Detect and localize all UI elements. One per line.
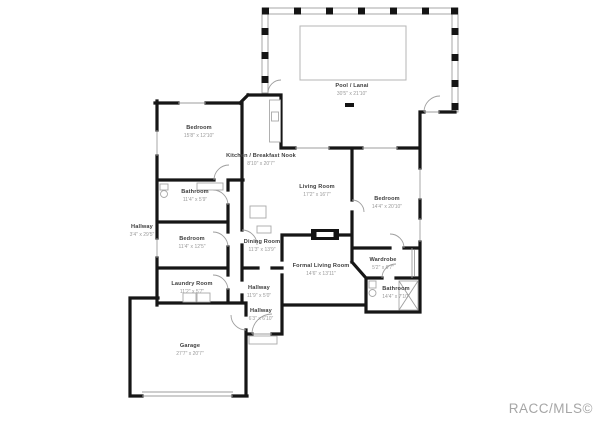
pool-step bbox=[345, 103, 354, 107]
room-name-wardrobe: Wardrobe bbox=[369, 257, 396, 263]
fireplace bbox=[311, 229, 339, 240]
room-dims-bathroom-2: 14'4" x 7'10" bbox=[382, 294, 410, 300]
room-name-dining-room: Dining Room bbox=[244, 239, 280, 245]
room-name-garage: Garage bbox=[180, 343, 200, 349]
bathroom2-toilet-bowl bbox=[369, 290, 376, 297]
room-name-hallway-1: Hallway bbox=[131, 224, 154, 230]
room-dims-living-room: 17'2" x 16'7" bbox=[303, 192, 331, 198]
room-dims-hallway-2: 11'9" x 5'0" bbox=[247, 293, 271, 299]
room-dims-hallway-3: 6'3" x 6'10" bbox=[249, 316, 274, 322]
watermark: RACC/MLS© bbox=[509, 401, 593, 416]
front-stoop bbox=[249, 336, 277, 344]
room-dims-bedroom-1: 15'8" x 12'10" bbox=[184, 133, 214, 139]
room-dims-kitchen: 8'10" x 20'7" bbox=[247, 161, 275, 167]
room-name-laundry: Laundry Room bbox=[171, 281, 212, 287]
room-dims-pool-lanai: 30'5" x 21'10" bbox=[337, 91, 367, 97]
room-name-living-room: Living Room bbox=[299, 184, 335, 190]
room-name-bedroom-2: Bedroom bbox=[374, 196, 400, 202]
room-name-bedroom-1: Bedroom bbox=[186, 125, 212, 131]
room-dims-bedroom-3: 11'4" x 12'5" bbox=[178, 244, 205, 250]
kitchen-island bbox=[250, 206, 266, 218]
floorplan-drawing: Pool / Lanai 30'5" x 21'10" Bedroom 15'8… bbox=[0, 0, 600, 424]
bathroom2-toilet-tank bbox=[369, 281, 376, 288]
wardrobe-closet-lines bbox=[412, 248, 415, 278]
room-name-pool-lanai: Pool / Lanai bbox=[335, 83, 368, 89]
room-dims-dining-room: 11'3" x 13'9" bbox=[248, 247, 275, 253]
kitchen-sink bbox=[272, 112, 279, 121]
room-name-bedroom-3: Bedroom bbox=[179, 236, 205, 242]
bathroom1-toilet-bowl bbox=[161, 191, 168, 198]
room-name-bathroom-1: Bathroom bbox=[181, 189, 209, 195]
room-name-kitchen: Kitchen / Breakfast Nook bbox=[226, 153, 297, 159]
bathroom1-toilet-tank bbox=[160, 184, 168, 190]
room-dims-wardrobe: 5'2" x 6'7" bbox=[372, 265, 394, 271]
room-name-bathroom-2: Bathroom bbox=[382, 286, 410, 292]
room-dims-garage: 27'7" x 20'7" bbox=[176, 351, 204, 357]
room-dims-bathroom-1: 11'4" x 5'9" bbox=[183, 197, 207, 203]
dining-hutch bbox=[257, 226, 271, 233]
pool bbox=[300, 26, 406, 80]
room-dims-formal-living: 14'6" x 13'11" bbox=[306, 271, 336, 277]
room-dims-bedroom-2: 14'4" x 20'10" bbox=[372, 204, 402, 210]
floorplan-page: Pool / Lanai 30'5" x 21'10" Bedroom 15'8… bbox=[0, 0, 600, 424]
room-dims-laundry: 11'2" x 5'7" bbox=[180, 289, 204, 295]
room-name-hallway-3: Hallway bbox=[250, 308, 273, 314]
room-dims-hallway-1: 3'4" x 29'5" bbox=[130, 232, 155, 238]
room-name-formal-living: Formal Living Room bbox=[293, 263, 350, 269]
room-name-hallway-2: Hallway bbox=[248, 285, 271, 291]
